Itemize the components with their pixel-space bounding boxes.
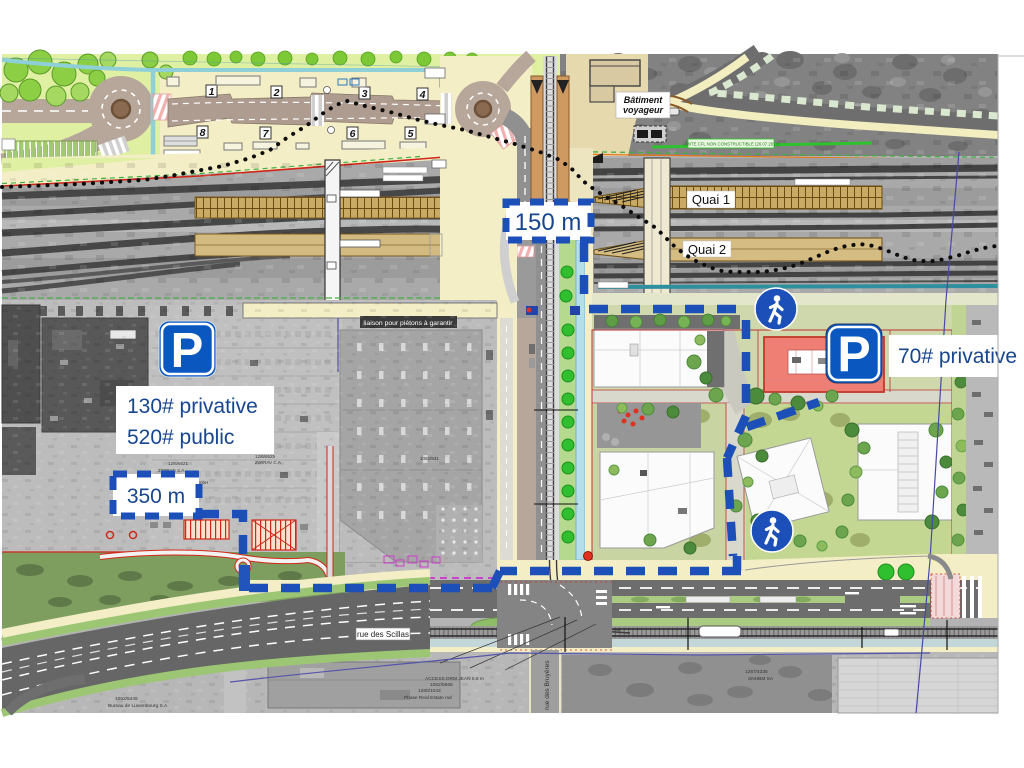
svg-text:520# public: 520# public xyxy=(127,426,234,449)
svg-text:350 m: 350 m xyxy=(127,485,185,508)
svg-text:1062/5445: 1062/5445 xyxy=(115,696,138,702)
svg-text:Bâtiment: Bâtiment xyxy=(624,95,664,105)
svg-text:SNHBM SA: SNHBM SA xyxy=(748,676,774,682)
svg-text:rue des Bruyères: rue des Bruyères xyxy=(544,660,551,710)
svg-text:Bureau de Luxembourg S.A: Bureau de Luxembourg S.A xyxy=(108,703,168,709)
svg-text:1062/5568: 1062/5568 xyxy=(430,682,453,688)
svg-text:voyageur: voyageur xyxy=(623,105,664,115)
svg-text:4: 4 xyxy=(419,89,426,101)
svg-text:LIMITE CFL NON CONSTRUCTIBLE (: LIMITE CFL NON CONSTRUCTIBLE (26.07.2017… xyxy=(683,142,780,147)
svg-text:70# privative: 70# privative xyxy=(898,345,1017,368)
svg-text:8: 8 xyxy=(200,127,206,139)
svg-text:ACCESS DRM JEAN 5.8 m: ACCESS DRM JEAN 5.8 m xyxy=(425,676,484,682)
svg-text:2: 2 xyxy=(273,87,280,99)
svg-text:rue des Scillas: rue des Scillas xyxy=(357,630,409,639)
svg-text:1280/1043: 1280/1043 xyxy=(418,688,441,694)
svg-text:3: 3 xyxy=(362,88,368,100)
svg-text:130# privative: 130# privative xyxy=(127,395,258,418)
svg-text:Quai 2: Quai 2 xyxy=(688,242,726,257)
svg-text:P: P xyxy=(837,326,870,382)
svg-text:150 m: 150 m xyxy=(515,209,582,236)
svg-text:P: P xyxy=(171,324,204,378)
svg-text:5: 5 xyxy=(408,128,414,140)
svg-text:Quai 1: Quai 1 xyxy=(692,192,730,207)
svg-text:Phase Real Estate md: Phase Real Estate md xyxy=(404,695,452,701)
svg-text:1257/4335: 1257/4335 xyxy=(745,669,768,675)
svg-text:1: 1 xyxy=(209,86,215,98)
svg-text:6: 6 xyxy=(350,128,356,140)
